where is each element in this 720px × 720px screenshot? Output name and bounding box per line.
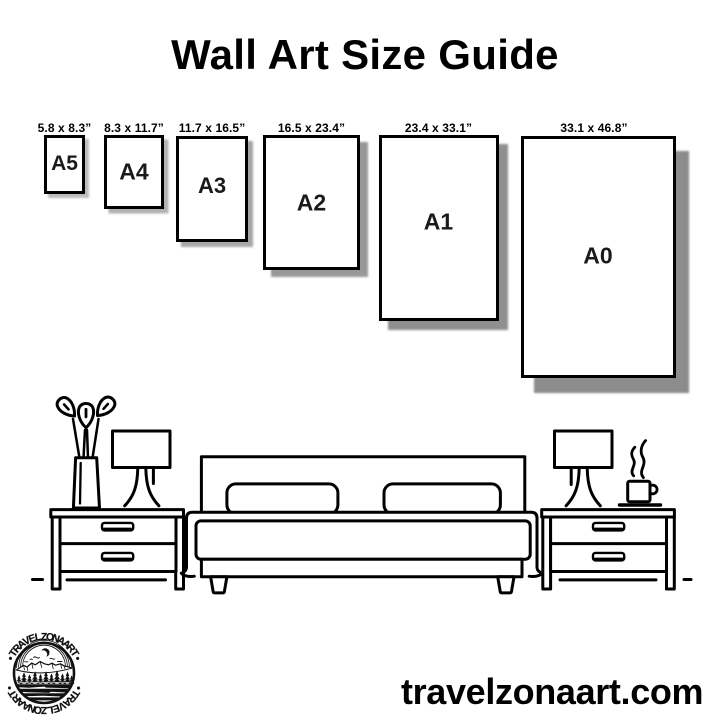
svg-text:Z: Z: [40, 704, 47, 715]
